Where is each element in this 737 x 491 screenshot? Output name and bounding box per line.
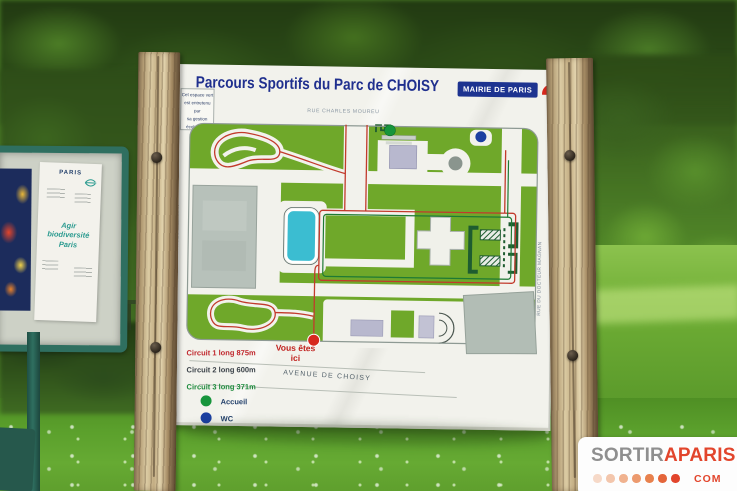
mairie-de-paris-badge: MAIRIE DE PARIS <box>458 81 538 97</box>
you-are-here-label: Vous êtes ici <box>274 344 316 364</box>
wood-crack <box>568 62 576 478</box>
photo-of-park-sign: PARIS Agir biodiversité Paris Parcours S… <box>0 0 737 491</box>
legend-circuit-2: Circuit 2 long 600m <box>187 365 256 374</box>
sortiraparis-watermark: SORTIRAPARIS COM <box>578 437 737 491</box>
legend-accueil: Accueil <box>221 397 248 406</box>
park-map <box>181 105 545 356</box>
poster-message: Agir biodiversité Paris <box>37 220 100 250</box>
gray-building-southeast <box>462 291 537 355</box>
event-poster <box>0 168 32 310</box>
bolt-icon <box>564 150 575 161</box>
sports-hall-building <box>191 185 257 288</box>
legend-wc: WC <box>221 414 234 423</box>
legend-circuit-3: Circuit 3 long 371m <box>187 382 256 391</box>
paris-brand-text: PARIS <box>40 169 102 177</box>
street-label-top: RUE CHARLES MOUREU <box>307 108 379 115</box>
watermark-dots <box>593 474 680 483</box>
street-label-bottom: AVENUE DE CHOISY <box>283 369 371 382</box>
poster-micro-text <box>74 193 90 204</box>
wooden-post-left <box>134 52 181 491</box>
dragonfly-icon <box>83 178 97 189</box>
accueil-dot <box>384 125 395 136</box>
wc-legend-dot <box>201 412 212 423</box>
bolt-icon <box>567 350 578 361</box>
pavilion-building <box>389 145 416 168</box>
watermark-wordmark: SORTIRAPARIS <box>591 445 736 467</box>
notice-board: PARIS Agir biodiversité Paris <box>0 145 129 352</box>
accueil-legend-dot <box>201 395 212 406</box>
poster-micro-text <box>74 267 92 278</box>
sign-title: Parcours Sportifs du Parc de CHOISY <box>196 74 440 96</box>
biodiversity-poster: PARIS Agir biodiversité Paris <box>34 162 102 322</box>
street-label-right: RUE DU DOCTEUR MAGNAN <box>537 230 543 316</box>
central-lawn <box>325 215 406 259</box>
bolt-icon <box>151 152 162 163</box>
notice-board-post <box>0 427 36 491</box>
bench-icon <box>382 135 416 140</box>
legend-circuit-1: Circuit 1 long 875m <box>186 348 255 357</box>
sign-board: Parcours Sportifs du Parc de CHOISY MAIR… <box>170 64 556 431</box>
bolt-icon <box>150 342 161 353</box>
pond <box>283 207 319 265</box>
wood-crack <box>153 56 159 477</box>
watermark-com: COM <box>694 473 722 485</box>
poster-micro-text <box>47 188 65 199</box>
poster-micro-text <box>42 260 58 271</box>
wooden-post-right <box>546 58 599 491</box>
